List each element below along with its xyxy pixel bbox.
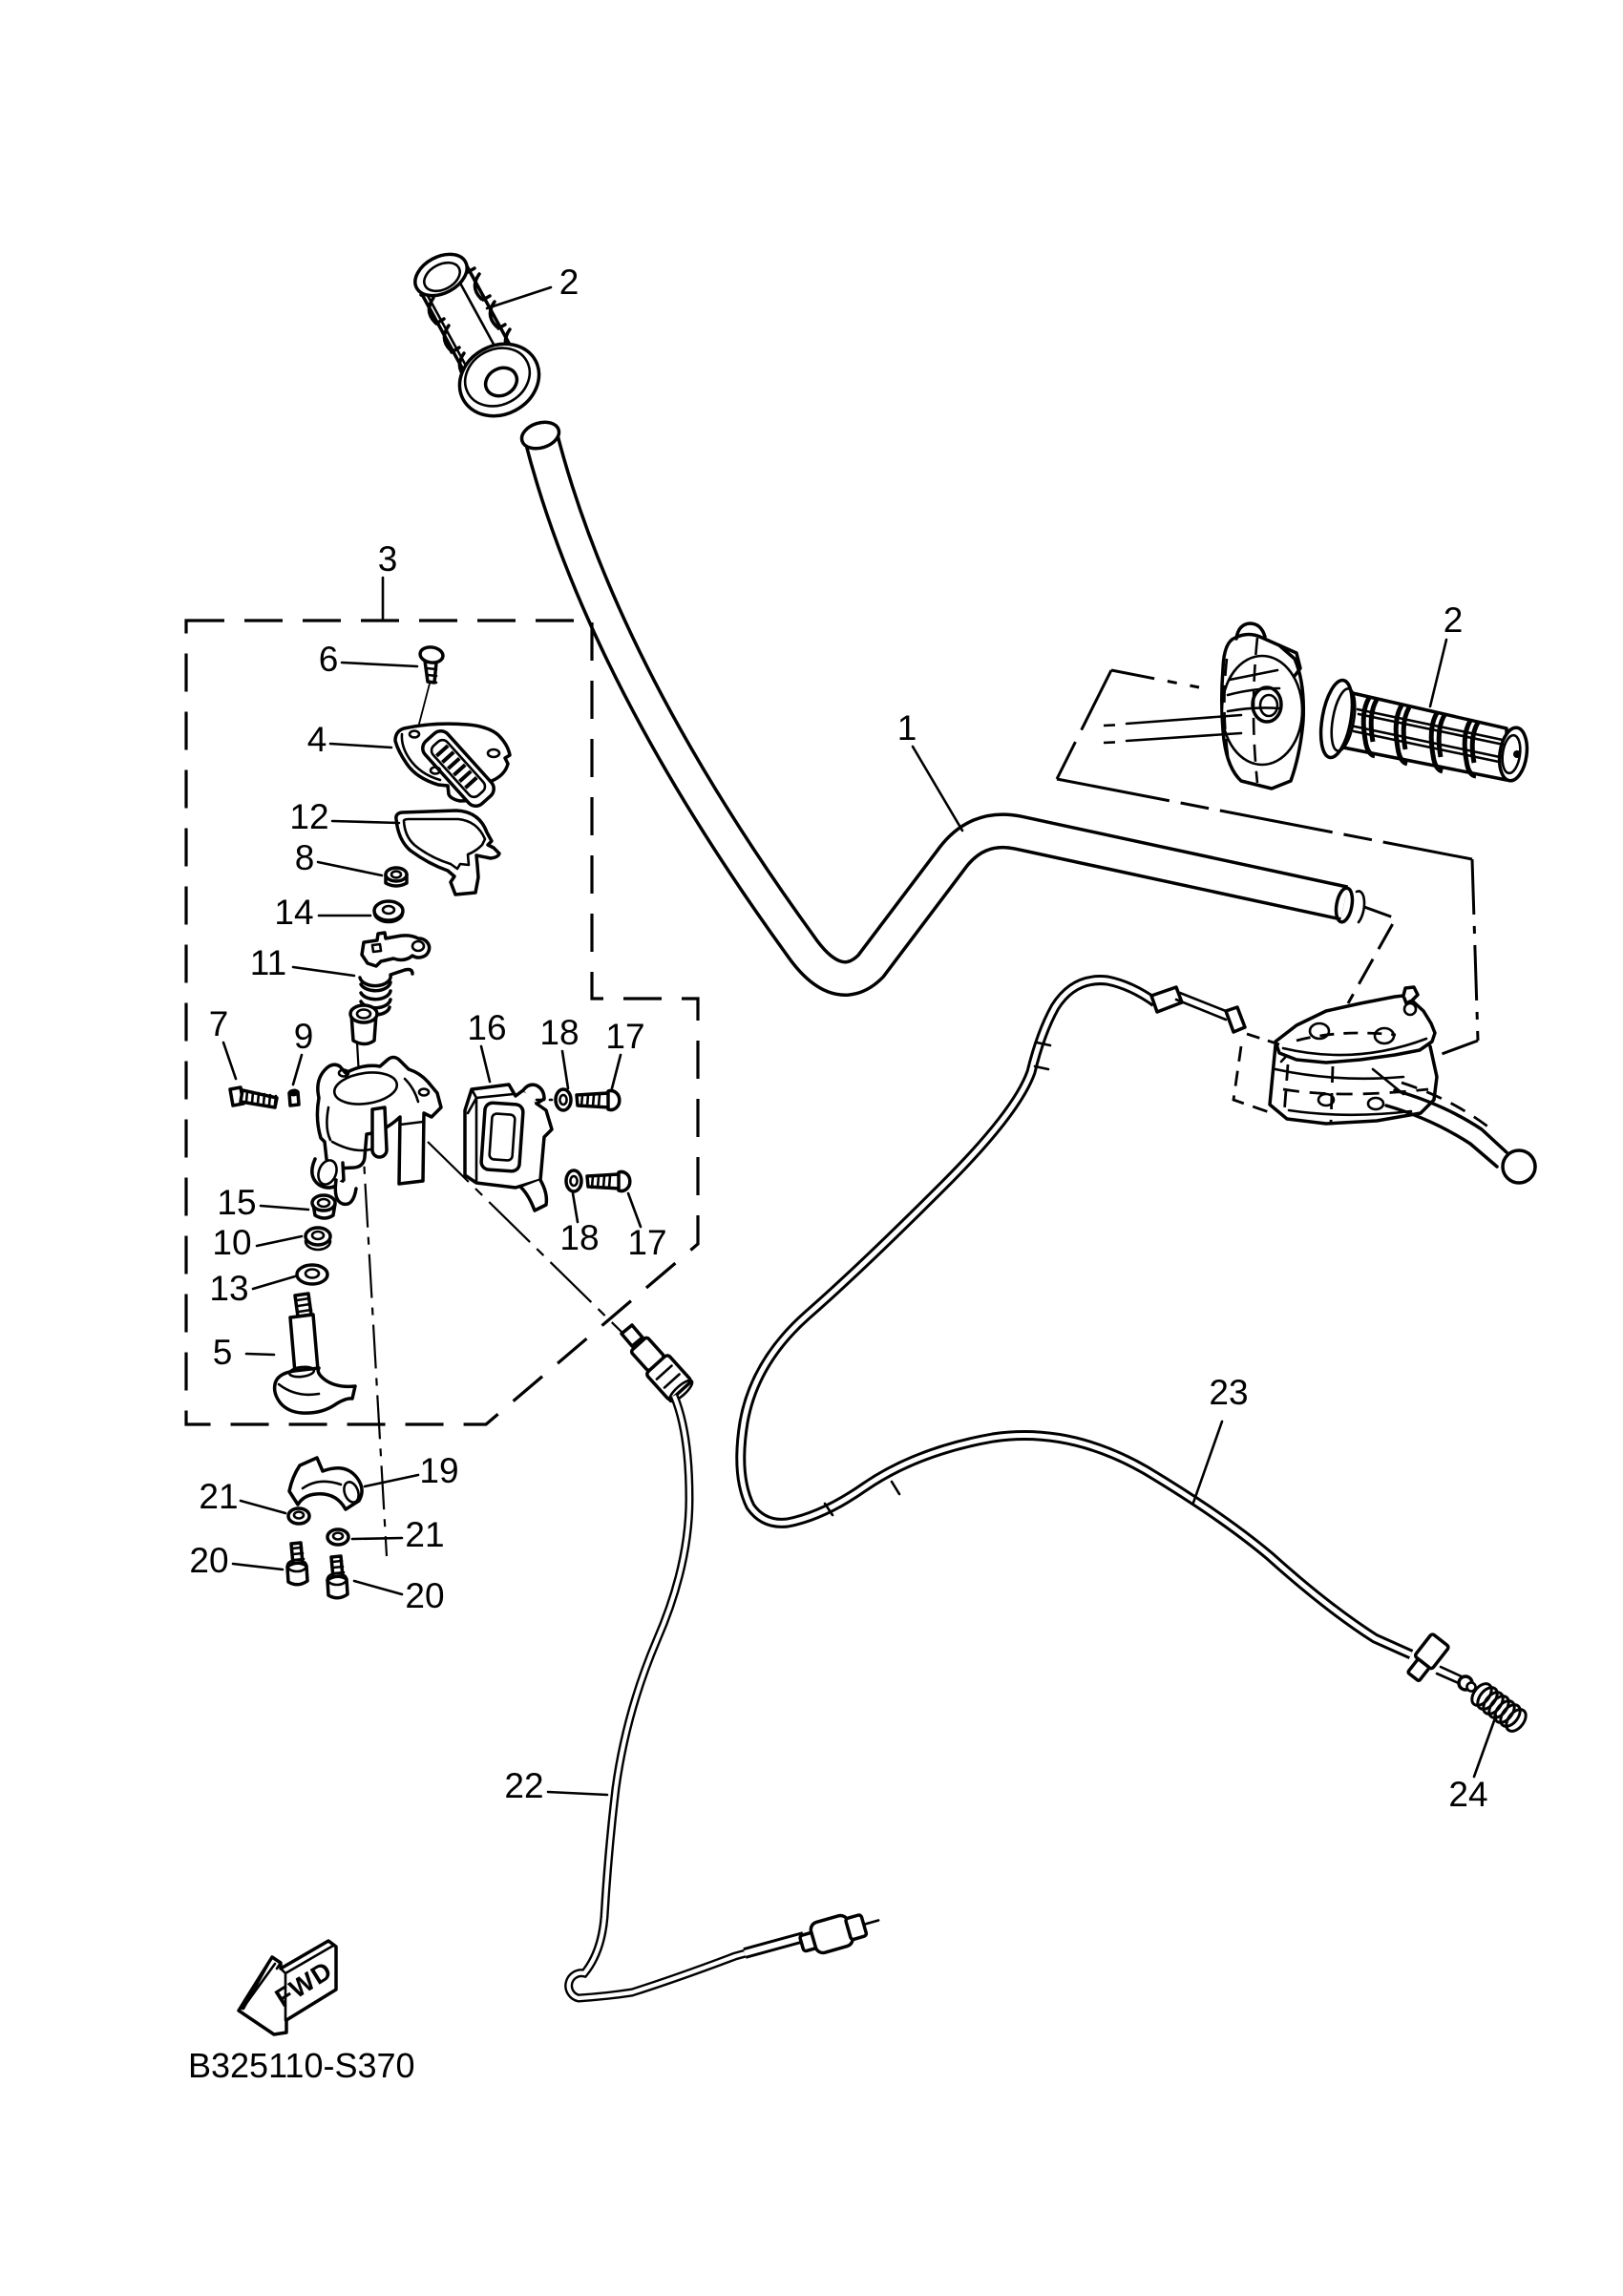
- svg-text:22: 22: [504, 1766, 543, 1805]
- svg-text:20: 20: [189, 1541, 228, 1580]
- svg-text:18: 18: [559, 1218, 599, 1257]
- svg-text:7: 7: [209, 1004, 229, 1043]
- svg-text:12: 12: [289, 797, 328, 836]
- svg-text:6: 6: [319, 640, 339, 679]
- svg-text:18: 18: [539, 1013, 579, 1052]
- svg-text:15: 15: [217, 1183, 256, 1222]
- svg-text:14: 14: [274, 893, 313, 932]
- svg-text:21: 21: [199, 1477, 238, 1516]
- svg-text:21: 21: [405, 1515, 444, 1554]
- svg-text:10: 10: [212, 1223, 251, 1262]
- svg-text:2: 2: [1444, 600, 1464, 640]
- svg-text:17: 17: [627, 1223, 666, 1262]
- svg-text:2: 2: [559, 263, 580, 302]
- svg-text:B325110-S370: B325110-S370: [188, 2046, 415, 2085]
- svg-text:13: 13: [209, 1269, 248, 1308]
- svg-text:4: 4: [307, 720, 327, 759]
- svg-text:19: 19: [419, 1451, 458, 1490]
- svg-text:9: 9: [294, 1017, 314, 1056]
- svg-text:17: 17: [605, 1017, 644, 1056]
- svg-text:11: 11: [250, 943, 286, 982]
- svg-text:8: 8: [295, 838, 315, 877]
- svg-text:3: 3: [378, 539, 398, 579]
- svg-text:5: 5: [213, 1333, 233, 1372]
- svg-text:23: 23: [1209, 1373, 1248, 1412]
- svg-text:16: 16: [467, 1008, 506, 1047]
- svg-text:20: 20: [405, 1576, 444, 1615]
- svg-text:24: 24: [1448, 1775, 1487, 1814]
- svg-text:1: 1: [897, 708, 917, 748]
